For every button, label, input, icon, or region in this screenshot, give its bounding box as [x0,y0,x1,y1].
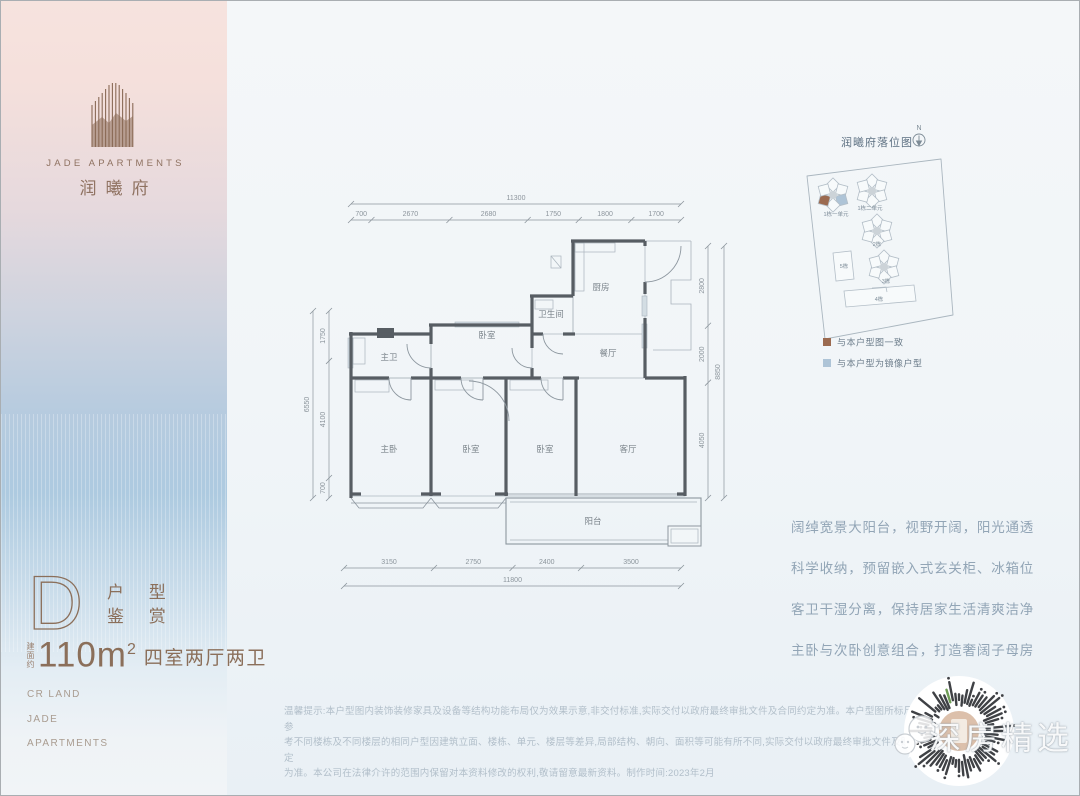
svg-text:700: 700 [320,482,327,494]
feature-list: 阔绰宽景大阳台，视野开阔，阳光通透科学收纳，预留嵌入式玄关柜、冰箱位客卫干湿分离… [791,507,1034,671]
unit-letter-d: D [27,567,93,639]
building-cluster [857,174,887,208]
unit-subtitle-line2: 鉴 赏 [107,605,176,629]
room-label: 主卫 [380,352,398,362]
brand-logo: JADE APARTMENTS 润曦府 [1,83,227,199]
svg-text:与本户型为镜像户型: 与本户型为镜像户型 [837,358,923,369]
brand-name-cn: 润曦府 [1,174,227,199]
dimension-chain: 17504100700 [320,308,332,501]
svg-text:2670: 2670 [403,211,419,218]
dimension-total: 11800 [341,577,684,589]
siteplan-legend-item: 与本户型图一致 [823,337,904,348]
dimension-chain: 3150275024003500 [341,559,684,571]
svg-text:1700: 1700 [648,211,664,218]
svg-text:2000: 2000 [699,346,706,362]
room-label: 餐厅 [599,348,617,358]
room-label: 厨房 [592,282,609,292]
building-lines-icon [82,83,146,149]
room-label: 主卧 [380,444,398,454]
feature-line: 主卧与次卧创意组合，打造奢阔子母房 [791,630,1034,671]
svg-text:3150: 3150 [381,559,397,566]
building-label: 4栋 [875,295,884,303]
svg-text:1750: 1750 [545,211,561,218]
sidebar-gradient-panel: JADE APARTMENTS 润曦府 [1,1,227,795]
unit-subtitle: 户 型 鉴 赏 [107,581,176,629]
building-label: 3栋 [882,277,891,285]
svg-text:2750: 2750 [465,559,481,566]
disclaimer-line: 温馨提示:本户型图内装饰装修家具及设备等结构功能布局仅为效果示意,非交付标准,实… [284,704,952,735]
svg-text:2680: 2680 [481,211,497,218]
building-label: 5栋 [840,262,849,270]
area-prefix: 建面约 [25,642,36,669]
svg-text:6550: 6550 [304,397,311,413]
siteplan-drawing: 润曦府落位图N1栋一单元1栋二单元2栋3栋5栋4栋与本户型图一致与本户型为镜像户… [791,119,981,379]
disclaimer-line: 考不同楼栋及不同楼层的相同户型因建筑立面、楼栋、单元、楼层等差异,局部结构、朝向… [284,735,952,766]
feature-line: 客卫干湿分离，保持居家生活清爽洁净 [791,589,1034,630]
svg-text:1750: 1750 [320,328,327,344]
svg-text:11300: 11300 [507,195,526,202]
room-label: 阳台 [584,516,601,526]
feature-line: 阔绰宽景大阳台，视野开阔，阳光通透 [791,507,1034,548]
poster-page: JADE APARTMENTS 润曦府 D 户 型 鉴 赏 建面约 110m2 … [0,0,1080,796]
developer-line: JADE [27,708,108,733]
svg-text:8850: 8850 [715,364,722,380]
disclaimer-text: 温馨提示:本户型图内装饰装修家具及设备等结构功能布局仅为效果示意,非交付标准,实… [284,704,952,782]
disclaimer-line: 为准。本公司在法律介许的范围内保留对本资料修改的权利,敬请留意最新资料。制作时间… [284,766,952,782]
svg-text:D: D [28,567,83,639]
svg-text:2400: 2400 [539,559,555,566]
building-label: 2栋 [873,240,882,248]
room-label: 卧室 [536,444,554,454]
unit-area-row: 建面约 110m2 四室两厅两卫 [25,633,267,673]
svg-text:1800: 1800 [597,211,613,218]
brand-name-en: JADE APARTMENTS [1,158,227,169]
dimension-total: 8850 [715,243,727,501]
svg-text:4100: 4100 [320,412,327,428]
svg-text:与本户型图一致: 与本户型图一致 [837,337,904,348]
developer-line: CR LAND [27,683,108,708]
north-compass-icon: N [913,125,925,146]
unit-subtitle-line1: 户 型 [107,581,176,605]
building-cluster [818,178,848,212]
developer-lines: CR LANDJADEAPARTMENTS [27,683,108,757]
room-label: 卫生间 [538,309,564,319]
dimension-chain: 280020004050 [699,243,711,501]
dimension-total: 6550 [304,308,316,501]
building-label: 1栋二单元 [857,204,883,212]
building-label: 1栋一单元 [823,210,849,218]
svg-text:11800: 11800 [503,577,522,584]
svg-text:4050: 4050 [699,432,706,448]
floorplan-drawing: 厨房卫生间餐厅卧室主卫主卧卧室卧室客厅阳台1130070026702680175… [289,184,769,604]
developer-line: APARTMENTS [27,732,108,757]
siteplan-title: 润曦府落位图 [841,135,913,149]
area-number: 110m2 [38,633,137,673]
svg-text:3500: 3500 [623,559,639,566]
dimension-total: 11300 [348,195,684,207]
watermark-text: 深房精选 [929,713,1073,759]
feature-line: 科学收纳，预留嵌入式玄关柜、冰箱位 [791,548,1034,589]
siteplan-legend-item: 与本户型为镜像户型 [823,358,923,369]
svg-text:700: 700 [355,211,367,218]
dimension-chain: 70026702680175018001700 [348,211,684,223]
room-label: 卧室 [478,330,496,340]
rooms-description: 四室两厅两卫 [144,643,267,670]
svg-text:2800: 2800 [699,278,706,294]
room-label: 客厅 [619,444,637,454]
room-label: 卧室 [462,444,480,454]
svg-text:N: N [916,125,921,132]
